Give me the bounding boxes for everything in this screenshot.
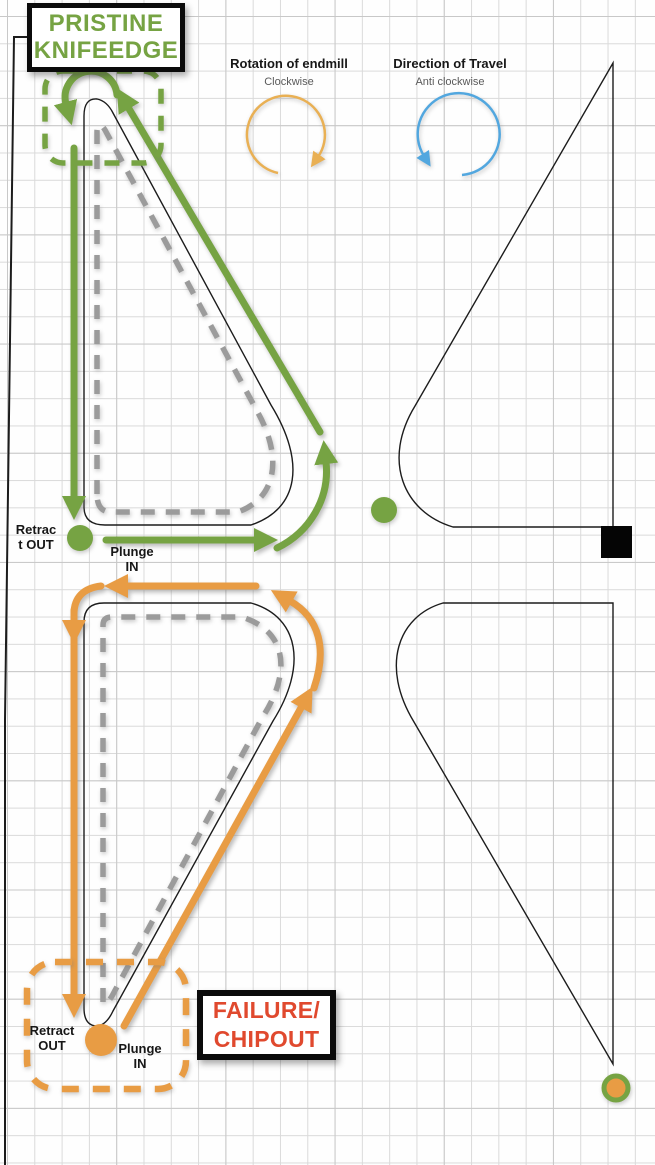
part-outline-bottom-left xyxy=(84,603,294,1026)
failure-chipout-box: FAILURE/ CHIPOUT xyxy=(197,990,336,1060)
plunge-in-label-top: Plunge IN xyxy=(102,545,162,574)
plunge-in-label-bottom: Plunge IN xyxy=(111,1042,169,1071)
plunge-point-dot-top-right xyxy=(371,497,397,523)
retract-out-label-top: Retrac t OUT xyxy=(10,523,62,552)
failure-line-2: CHIPOUT xyxy=(214,1025,320,1054)
inner-toolpath-dashed-top xyxy=(97,125,273,512)
travel-anticlockwise-subtitle: Anti clockwise xyxy=(366,76,534,88)
climb-toolpath-arrows xyxy=(65,71,326,548)
hypotenuse-arrow-bottom xyxy=(124,706,302,1026)
direction-of-travel-title: Direction of Travel xyxy=(366,56,534,71)
rotation-clockwise-icon xyxy=(247,96,325,173)
endmill-square-marker xyxy=(601,526,632,558)
pristine-line-1: PRISTINE xyxy=(49,11,164,38)
pristine-knifeedge-box: PRISTINE KNIFEEDGE xyxy=(27,3,185,72)
toolpath-diagram-canvas: PRISTINE KNIFEEDGE Rotation of endmill C… xyxy=(0,0,655,1165)
inner-toolpath-dashed-bottom xyxy=(103,617,281,1003)
corner-arc-arrow-bottom xyxy=(290,601,320,688)
part-outline-bottom-right xyxy=(396,603,613,1064)
part-outline-top-right xyxy=(399,63,613,527)
endmill-position-dot-bottom-right xyxy=(604,1076,628,1100)
rotation-of-endmill-title: Rotation of endmill xyxy=(200,56,378,71)
pristine-apex-highlight-box xyxy=(45,71,161,163)
retract-out-label-bottom: Retract OUT xyxy=(22,1024,82,1053)
conventional-toolpath-arrows xyxy=(74,586,320,1026)
travel-anticlockwise-icon xyxy=(418,93,500,175)
failure-line-1: FAILURE/ xyxy=(213,996,320,1025)
pristine-line-2: KNIFEEDGE xyxy=(34,38,179,65)
corner-arc-arrow-top xyxy=(277,462,327,548)
retract-point-dot-top xyxy=(67,525,93,551)
rotation-clockwise-subtitle: Clockwise xyxy=(200,76,378,88)
